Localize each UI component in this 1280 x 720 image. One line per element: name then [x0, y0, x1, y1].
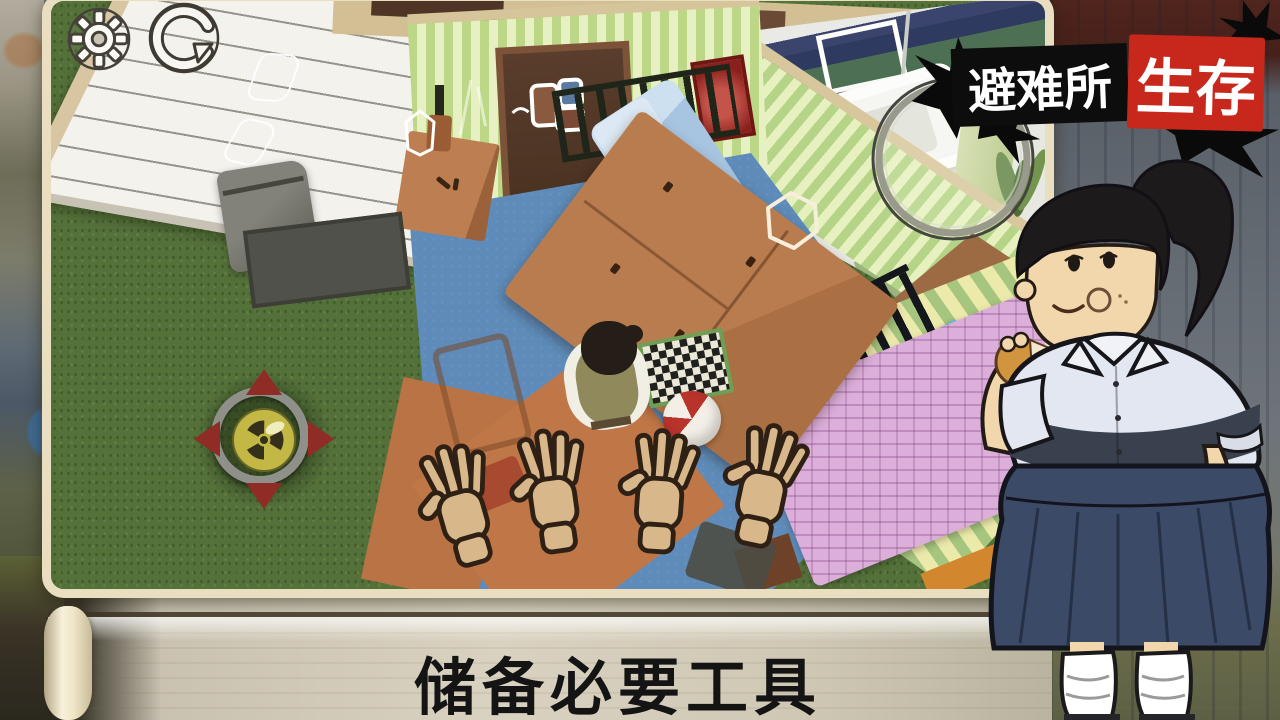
wardrobe-hotspot[interactable] — [763, 191, 821, 251]
girl-character — [968, 148, 1280, 720]
undo-arrow-icon — [146, 0, 222, 76]
title-part-black: 避难所 — [951, 43, 1130, 127]
reaching-hand — [494, 419, 607, 563]
game-screen: 避难所 生存 储备必要工具 — [0, 0, 1280, 720]
radiation-sign-icon — [230, 406, 298, 474]
title-part-red: 生存 — [1127, 34, 1265, 132]
settings-button[interactable] — [66, 6, 132, 72]
reaching-hand — [607, 422, 712, 560]
gear-icon — [66, 6, 132, 72]
chalk-mark — [476, 87, 487, 127]
title-badge: 避难所 生存 — [900, 0, 1280, 150]
chalk-mark — [459, 80, 473, 136]
wall-hotspot[interactable] — [403, 109, 437, 157]
house-scene — [51, 1, 1045, 589]
title-text-black: 避难所 — [967, 48, 1113, 123]
chalk-outline-marker — [244, 52, 303, 102]
chalk-outline-marker — [220, 117, 280, 168]
scroll-roll-edge — [44, 606, 92, 720]
undo-button[interactable] — [146, 0, 222, 76]
bunker-hatch[interactable] — [197, 373, 331, 507]
title-text-red: 生存 — [1135, 38, 1257, 128]
